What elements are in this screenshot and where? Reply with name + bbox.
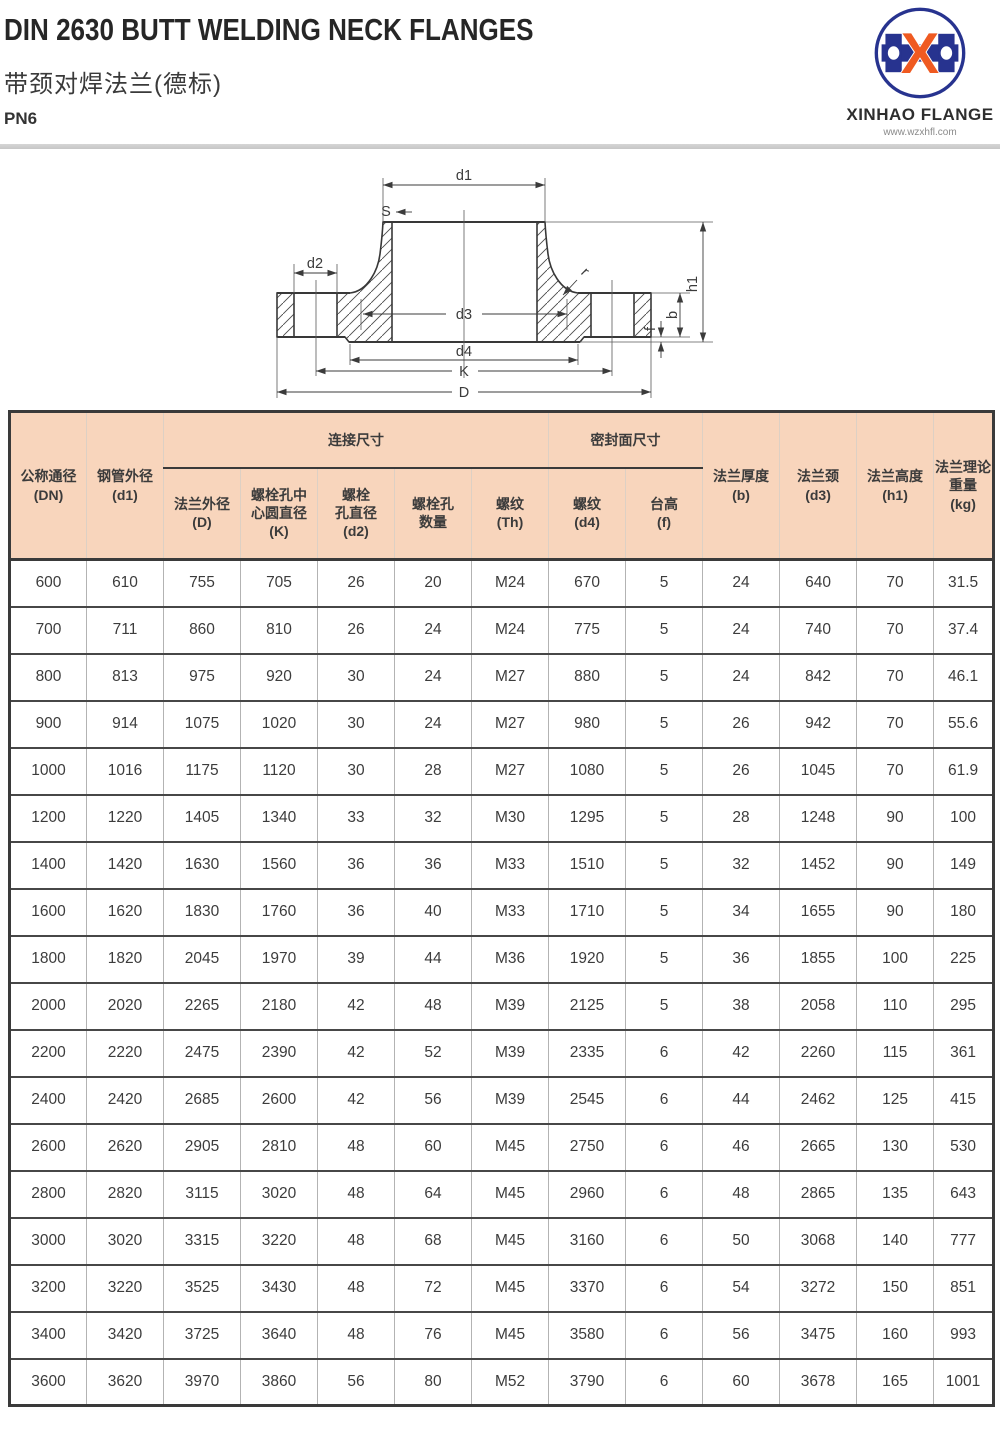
table-cell: 6: [626, 1030, 703, 1077]
table-cell: 36: [395, 842, 472, 889]
table-row: 14001420163015603636M331510532145290149: [10, 842, 994, 889]
table-cell: 3430: [241, 1265, 318, 1312]
table-cell: 1200: [10, 795, 87, 842]
table-cell: 6: [626, 1077, 703, 1124]
table-cell: 2020: [87, 983, 164, 1030]
section-divider: [0, 144, 1000, 149]
table-cell: 2475: [164, 1030, 241, 1077]
table-cell: 30: [318, 748, 395, 795]
col-header-bolt-count: 螺栓孔 数量: [395, 468, 472, 560]
table-cell: 26: [703, 701, 780, 748]
table-cell: 3790: [549, 1359, 626, 1406]
flange-table-body: 6006107557052620M246705246407031.5700711…: [10, 560, 994, 1406]
table-cell: 48: [703, 1171, 780, 1218]
dim-label-d2: d2: [307, 256, 323, 272]
table-cell: M52: [472, 1359, 549, 1406]
table-cell: 920: [241, 654, 318, 701]
table-cell: 55.6: [934, 701, 994, 748]
table-cell: 46: [703, 1124, 780, 1171]
table-cell: 24: [395, 654, 472, 701]
col-header-bolt-hole-dia: 螺栓 孔直径 (d2): [318, 468, 395, 560]
table-cell: 2200: [10, 1030, 87, 1077]
table-cell: 52: [395, 1030, 472, 1077]
table-cell: 975: [164, 654, 241, 701]
table-cell: 70: [857, 701, 934, 748]
table-cell: 1045: [780, 748, 857, 795]
table-cell: 38: [703, 983, 780, 1030]
table-cell: 2600: [10, 1124, 87, 1171]
table-cell: M45: [472, 1124, 549, 1171]
table-cell: 40: [395, 889, 472, 936]
table-cell: M39: [472, 1030, 549, 1077]
table-cell: 28: [395, 748, 472, 795]
table-cell: 5: [626, 936, 703, 983]
table-cell: 39: [318, 936, 395, 983]
table-row: 6006107557052620M246705246407031.5: [10, 560, 994, 607]
table-cell: M27: [472, 748, 549, 795]
table-cell: 1120: [241, 748, 318, 795]
table-cell: 37.4: [934, 607, 994, 654]
dim-label-r: r: [577, 265, 592, 280]
table-cell: 30: [318, 701, 395, 748]
table-cell: 3220: [241, 1218, 318, 1265]
table-cell: 842: [780, 654, 857, 701]
table-cell: 993: [934, 1312, 994, 1359]
table-cell: 851: [934, 1265, 994, 1312]
dim-label-d1: d1: [456, 168, 472, 184]
table-cell: 48: [318, 1312, 395, 1359]
table-cell: 3315: [164, 1218, 241, 1265]
table-cell: 5: [626, 889, 703, 936]
table-cell: 64: [395, 1171, 472, 1218]
table-row: 22002220247523904252M3923356422260115361: [10, 1030, 994, 1077]
table-cell: 225: [934, 936, 994, 983]
table-cell: M39: [472, 1077, 549, 1124]
table-cell: 2265: [164, 983, 241, 1030]
table-cell: 125: [857, 1077, 934, 1124]
table-cell: 2600: [241, 1077, 318, 1124]
table-cell: 42: [318, 1077, 395, 1124]
table-cell: 295: [934, 983, 994, 1030]
table-cell: 1830: [164, 889, 241, 936]
table-cell: 24: [703, 560, 780, 607]
dim-label-k: K: [459, 364, 469, 380]
table-cell: 48: [318, 1218, 395, 1265]
table-cell: 2905: [164, 1124, 241, 1171]
table-cell: 2810: [241, 1124, 318, 1171]
table-cell: 5: [626, 654, 703, 701]
table-cell: 56: [318, 1359, 395, 1406]
col-header-dn: 公称通径 (DN): [10, 412, 87, 560]
table-header: 公称通径 (DN) 钢管外径 (d1) 连接尺寸 密封面尺寸 法兰厚度 (b) …: [10, 412, 994, 560]
table-cell: M30: [472, 795, 549, 842]
table-cell: M33: [472, 842, 549, 889]
table-cell: 3020: [87, 1218, 164, 1265]
logo-mark-icon: X: [872, 4, 968, 102]
table-cell: 5: [626, 842, 703, 889]
table-cell: 31.5: [934, 560, 994, 607]
table-cell: 670: [549, 560, 626, 607]
table-cell: M33: [472, 889, 549, 936]
table-row: 24002420268526004256M3925456442462125415: [10, 1077, 994, 1124]
table-cell: 415: [934, 1077, 994, 1124]
table-cell: 3020: [241, 1171, 318, 1218]
table-cell: 140: [857, 1218, 934, 1265]
table-cell: 1560: [241, 842, 318, 889]
table-cell: 3600: [10, 1359, 87, 1406]
table-cell: 165: [857, 1359, 934, 1406]
table-cell: 1452: [780, 842, 857, 889]
table-cell: M45: [472, 1218, 549, 1265]
table-cell: 3000: [10, 1218, 87, 1265]
table-cell: 942: [780, 701, 857, 748]
table-cell: 72: [395, 1265, 472, 1312]
table-cell: 3400: [10, 1312, 87, 1359]
table-cell: 34: [703, 889, 780, 936]
table-cell: 800: [10, 654, 87, 701]
table-cell: 6: [626, 1312, 703, 1359]
table-cell: 6: [626, 1124, 703, 1171]
pressure-rating: PN6: [4, 109, 634, 129]
table-cell: 3860: [241, 1359, 318, 1406]
table-cell: 6: [626, 1265, 703, 1312]
col-header-pipe-od: 钢管外径 (d1): [87, 412, 164, 560]
table-cell: 3272: [780, 1265, 857, 1312]
table-cell: 36: [318, 889, 395, 936]
table-cell: M39: [472, 983, 549, 1030]
table-cell: 5: [626, 795, 703, 842]
table-cell: 2420: [87, 1077, 164, 1124]
dim-label-d3: d3: [456, 307, 472, 323]
table-row: 20002020226521804248M3921255382058110295: [10, 983, 994, 1030]
col-header-seal-d4: 螺纹 (d4): [549, 468, 626, 560]
table-cell: 3620: [87, 1359, 164, 1406]
table-cell: 1248: [780, 795, 857, 842]
col-header-seal-f: 台高 (f): [626, 468, 703, 560]
table-cell: 640: [780, 560, 857, 607]
flange-spec-table: 公称通径 (DN) 钢管外径 (d1) 连接尺寸 密封面尺寸 法兰厚度 (b) …: [8, 410, 995, 1407]
table-cell: 115: [857, 1030, 934, 1077]
table-cell: 32: [703, 842, 780, 889]
table-cell: 3678: [780, 1359, 857, 1406]
table-cell: M36: [472, 936, 549, 983]
col-header-thread: 螺纹 (Th): [472, 468, 549, 560]
table-cell: 1510: [549, 842, 626, 889]
table-cell: 130: [857, 1124, 934, 1171]
table-cell: 361: [934, 1030, 994, 1077]
table-row: 34003420372536404876M4535806563475160993: [10, 1312, 994, 1359]
table-cell: 48: [395, 983, 472, 1030]
table-cell: 1820: [87, 936, 164, 983]
col-header-neck: 法兰颈 (d3): [780, 412, 857, 560]
table-cell: 610: [87, 560, 164, 607]
table-cell: 2000: [10, 983, 87, 1030]
table-cell: 44: [395, 936, 472, 983]
table-cell: 2960: [549, 1171, 626, 1218]
table-cell: 2125: [549, 983, 626, 1030]
company-logo: X XINHAO FLANGE www.wzxhfl.com: [845, 4, 995, 138]
table-cell: 24: [703, 607, 780, 654]
table-cell: 5: [626, 701, 703, 748]
table-cell: 1630: [164, 842, 241, 889]
table-cell: 643: [934, 1171, 994, 1218]
table-cell: 90: [857, 795, 934, 842]
table-cell: 3525: [164, 1265, 241, 1312]
dim-label-s: S: [381, 204, 391, 220]
table-cell: 33: [318, 795, 395, 842]
table-cell: 26: [318, 560, 395, 607]
table-cell: 2220: [87, 1030, 164, 1077]
table-cell: 1920: [549, 936, 626, 983]
table-cell: 600: [10, 560, 87, 607]
table-cell: 48: [318, 1124, 395, 1171]
table-cell: 1175: [164, 748, 241, 795]
table-cell: 700: [10, 607, 87, 654]
header: DIN 2630 BUTT WELDING NECK FLANGES 带颈对焊法…: [4, 12, 634, 129]
table-cell: 1340: [241, 795, 318, 842]
table-cell: 1020: [241, 701, 318, 748]
table-cell: 3200: [10, 1265, 87, 1312]
table-row: 26002620290528104860M4527506462665130530: [10, 1124, 994, 1171]
table-cell: 980: [549, 701, 626, 748]
table-cell: 36: [703, 936, 780, 983]
table-cell: 3220: [87, 1265, 164, 1312]
table-cell: 1710: [549, 889, 626, 936]
table-cell: 42: [703, 1030, 780, 1077]
table-cell: M24: [472, 607, 549, 654]
table-cell: 1800: [10, 936, 87, 983]
table-row: 10001016117511203028M27108052610457061.9: [10, 748, 994, 795]
table-cell: 60: [395, 1124, 472, 1171]
table-cell: 6: [626, 1218, 703, 1265]
table-cell: 2545: [549, 1077, 626, 1124]
table-cell: 1600: [10, 889, 87, 936]
table-cell: 1420: [87, 842, 164, 889]
table-cell: 48: [318, 1265, 395, 1312]
table-cell: 80: [395, 1359, 472, 1406]
table-cell: 705: [241, 560, 318, 607]
company-website: www.wzxhfl.com: [883, 127, 956, 138]
table-cell: 100: [934, 795, 994, 842]
table-cell: 24: [703, 654, 780, 701]
table-cell: 3475: [780, 1312, 857, 1359]
dim-label-d: D: [459, 385, 469, 401]
table-row: 12001220140513403332M301295528124890100: [10, 795, 994, 842]
table-cell: 3970: [164, 1359, 241, 1406]
table-cell: 70: [857, 560, 934, 607]
table-cell: 2058: [780, 983, 857, 1030]
table-cell: 3725: [164, 1312, 241, 1359]
table-cell: 68: [395, 1218, 472, 1265]
table-cell: 1295: [549, 795, 626, 842]
dimension-lines: [277, 185, 703, 392]
table-cell: 160: [857, 1312, 934, 1359]
table-cell: 3580: [549, 1312, 626, 1359]
table-cell: 1760: [241, 889, 318, 936]
company-name: XINHAO FLANGE: [846, 105, 993, 125]
table-cell: 914: [87, 701, 164, 748]
table-cell: 110: [857, 983, 934, 1030]
table-row: 18001820204519703944M3619205361855100225: [10, 936, 994, 983]
table-cell: 1400: [10, 842, 87, 889]
table-cell: 810: [241, 607, 318, 654]
table-cell: 70: [857, 748, 934, 795]
group-header-sealing: 密封面尺寸: [549, 412, 703, 468]
table-cell: M27: [472, 654, 549, 701]
table-row: 900914107510203024M279805269427055.6: [10, 701, 994, 748]
col-header-height: 法兰高度 (h1): [857, 412, 934, 560]
table-cell: M27: [472, 701, 549, 748]
table-cell: 711: [87, 607, 164, 654]
table-row: 30003020331532204868M4531606503068140777: [10, 1218, 994, 1265]
table-cell: 1970: [241, 936, 318, 983]
catalog-page: DIN 2630 BUTT WELDING NECK FLANGES 带颈对焊法…: [0, 0, 1000, 1456]
table-cell: 60: [703, 1359, 780, 1406]
table-row: 36003620397038605680M5237906603678165100…: [10, 1359, 994, 1406]
table-cell: 775: [549, 607, 626, 654]
table-cell: 900: [10, 701, 87, 748]
col-header-thickness: 法兰厚度 (b): [703, 412, 780, 560]
dim-label-b: b: [665, 311, 681, 319]
page-title: DIN 2630 BUTT WELDING NECK FLANGES: [4, 12, 534, 48]
table-cell: 56: [395, 1077, 472, 1124]
table-cell: 46.1: [934, 654, 994, 701]
table-cell: 2390: [241, 1030, 318, 1077]
table-cell: 61.9: [934, 748, 994, 795]
table-cell: 755: [164, 560, 241, 607]
col-header-flange-od: 法兰外径 (D): [164, 468, 241, 560]
table-cell: 2865: [780, 1171, 857, 1218]
table-cell: 5: [626, 983, 703, 1030]
table-cell: 860: [164, 607, 241, 654]
table-cell: 149: [934, 842, 994, 889]
table-cell: M45: [472, 1265, 549, 1312]
table-cell: 2665: [780, 1124, 857, 1171]
table-cell: 3160: [549, 1218, 626, 1265]
table-cell: 777: [934, 1218, 994, 1265]
table-cell: 3370: [549, 1265, 626, 1312]
table-cell: 44: [703, 1077, 780, 1124]
table-cell: 26: [703, 748, 780, 795]
col-header-bolt-circle: 螺栓孔中 心圆直径 (K): [241, 468, 318, 560]
col-header-weight: 法兰理论 重量 (kg): [934, 412, 994, 560]
table-cell: 3068: [780, 1218, 857, 1265]
table-cell: 1405: [164, 795, 241, 842]
table-cell: M45: [472, 1312, 549, 1359]
table-cell: 5: [626, 748, 703, 795]
table-row: 8008139759203024M278805248427046.1: [10, 654, 994, 701]
table-cell: 3115: [164, 1171, 241, 1218]
table-cell: 2750: [549, 1124, 626, 1171]
table-cell: 1000: [10, 748, 87, 795]
table-cell: 3640: [241, 1312, 318, 1359]
table-row: 28002820311530204864M4529606482865135643: [10, 1171, 994, 1218]
table-cell: 28: [703, 795, 780, 842]
table-cell: 6: [626, 1359, 703, 1406]
table-cell: 530: [934, 1124, 994, 1171]
table-cell: 76: [395, 1312, 472, 1359]
table-cell: 42: [318, 1030, 395, 1077]
table-cell: 5: [626, 607, 703, 654]
table-row: 32003220352534304872M4533706543272150851: [10, 1265, 994, 1312]
table-cell: 2462: [780, 1077, 857, 1124]
logo-x-monogram: X: [901, 22, 939, 86]
table-cell: 70: [857, 607, 934, 654]
table-cell: 30: [318, 654, 395, 701]
table-cell: M45: [472, 1171, 549, 1218]
table-cell: 42: [318, 983, 395, 1030]
table-cell: 50: [703, 1218, 780, 1265]
table-cell: 2800: [10, 1171, 87, 1218]
group-header-connection: 连接尺寸: [164, 412, 549, 468]
table-cell: 2335: [549, 1030, 626, 1077]
table-cell: 2045: [164, 936, 241, 983]
table-cell: 2685: [164, 1077, 241, 1124]
table-cell: 1016: [87, 748, 164, 795]
table-cell: 24: [395, 701, 472, 748]
table-cell: 1001: [934, 1359, 994, 1406]
table-cell: 1075: [164, 701, 241, 748]
table-cell: 90: [857, 842, 934, 889]
page-title-chinese: 带颈对焊法兰(德标): [4, 64, 634, 99]
flange-cross-section-diagram: d1 S d2 d3 d4 K D h1 b f r: [250, 160, 750, 410]
table-cell: 24: [395, 607, 472, 654]
table-cell: 20: [395, 560, 472, 607]
spec-table-wrap: 公称通径 (DN) 钢管外径 (d1) 连接尺寸 密封面尺寸 法兰厚度 (b) …: [8, 410, 995, 1407]
dim-label-d4: d4: [456, 344, 472, 360]
table-cell: 26: [318, 607, 395, 654]
table-cell: 56: [703, 1312, 780, 1359]
table-cell: 6: [626, 1171, 703, 1218]
table-cell: 740: [780, 607, 857, 654]
extension-lines: [277, 178, 713, 398]
table-cell: 3420: [87, 1312, 164, 1359]
table-cell: 90: [857, 889, 934, 936]
table-cell: 1855: [780, 936, 857, 983]
table-cell: 1080: [549, 748, 626, 795]
table-cell: 1655: [780, 889, 857, 936]
table-row: 16001620183017603640M331710534165590180: [10, 889, 994, 936]
table-cell: 1620: [87, 889, 164, 936]
dim-label-h1: h1: [685, 276, 701, 292]
table-cell: 2180: [241, 983, 318, 1030]
table-cell: M24: [472, 560, 549, 607]
table-cell: 36: [318, 842, 395, 889]
table-cell: 150: [857, 1265, 934, 1312]
table-cell: 48: [318, 1171, 395, 1218]
table-cell: 813: [87, 654, 164, 701]
table-cell: 1220: [87, 795, 164, 842]
table-row: 7007118608102624M247755247407037.4: [10, 607, 994, 654]
table-cell: 5: [626, 560, 703, 607]
table-cell: 880: [549, 654, 626, 701]
table-cell: 2260: [780, 1030, 857, 1077]
table-cell: 32: [395, 795, 472, 842]
table-cell: 2820: [87, 1171, 164, 1218]
table-cell: 2400: [10, 1077, 87, 1124]
table-cell: 54: [703, 1265, 780, 1312]
table-cell: 70: [857, 654, 934, 701]
table-cell: 135: [857, 1171, 934, 1218]
table-cell: 2620: [87, 1124, 164, 1171]
table-cell: 180: [934, 889, 994, 936]
table-cell: 100: [857, 936, 934, 983]
